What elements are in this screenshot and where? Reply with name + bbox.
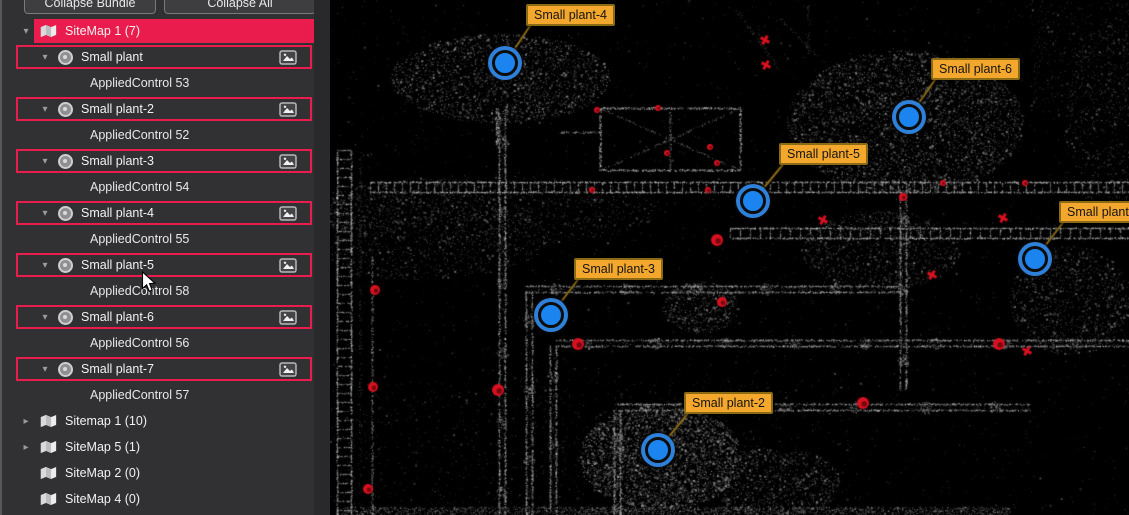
tree-item-label: Small plant-6 [81,310,154,324]
tree-item-label: SiteMap 1 (7) [65,24,140,38]
expand-caret-icon[interactable]: ▾ [38,364,52,375]
tree-item-scan[interactable]: ▾Small plant-7 [16,357,312,381]
tree-item-control[interactable]: AppliedControl 54 [2,175,314,199]
scan-position-marker[interactable] [740,188,766,214]
tree-item-control[interactable]: AppliedControl 56 [2,331,314,355]
sitemap-icon [40,466,57,480]
scan-icon [58,154,73,169]
scan-position-marker[interactable] [1022,246,1048,272]
pointcloud-viewer[interactable]: Small plant-4Small plant-6Small plant-5S… [330,0,1129,515]
scan-label-tag[interactable]: Small plant-6 [931,58,1020,80]
scan-label-tag[interactable]: Small plant-7 [1059,201,1129,223]
scan-icon [58,310,73,325]
tree-item-label: SiteMap 4 (0) [65,492,140,506]
image-preview-icon[interactable] [279,362,297,377]
tree-item-label: AppliedControl 58 [90,284,189,298]
tree-item-control[interactable]: AppliedControl 52 [2,123,314,147]
tree-item-label: Small plant-2 [81,102,154,116]
expand-caret-icon[interactable]: ▾ [38,260,52,271]
expand-caret-icon[interactable]: ▸ [19,442,33,453]
expand-caret-icon[interactable]: ▾ [38,312,52,323]
tree-scrollbar-gutter[interactable] [314,0,330,515]
image-preview-icon[interactable] [279,50,297,65]
tree-item-label: AppliedControl 52 [90,128,189,142]
scan-position-marker[interactable] [896,104,922,130]
sitemap-icon [40,440,57,454]
scan-icon [58,258,73,273]
scan-position-marker[interactable] [645,437,671,463]
tree-item-label: Small plant-5 [81,258,154,272]
tree-item-label: Small plant-3 [81,154,154,168]
tree-item-sitemap[interactable]: ▸Sitemap 1 (10) [2,409,314,433]
expand-caret-icon[interactable]: ▾ [38,208,52,219]
tree-item-label: Small plant [81,50,143,64]
tree-item-scan[interactable]: ▾Small plant-5 [16,253,312,277]
tree-item-sitemap[interactable]: ▾SiteMap 1 (7) [2,19,314,43]
expand-caret-icon[interactable]: ▾ [38,156,52,167]
register-app-window: Collapse Bundle Collapse All ▾SiteMap 1 … [0,0,1129,515]
scan-label-tag[interactable]: Small plant-3 [574,258,663,280]
collapse-all-button[interactable]: Collapse All [164,0,316,14]
tree-item-scan[interactable]: ▾Small plant-4 [16,201,312,225]
scan-icon [58,362,73,377]
tree-item-scan[interactable]: ▾Small plant-3 [16,149,312,173]
scan-tree: ▾SiteMap 1 (7)▾Small plantAppliedControl… [2,19,314,513]
image-preview-icon[interactable] [279,154,297,169]
tree-item-sitemap[interactable]: SiteMap 4 (0) [2,487,314,511]
sitemap-icon [40,414,57,428]
image-preview-icon[interactable] [279,310,297,325]
image-preview-icon[interactable] [279,102,297,117]
tree-item-scan[interactable]: ▾Small plant [16,45,312,69]
image-preview-icon[interactable] [279,206,297,221]
scan-icon [58,206,73,221]
scan-label-tag[interactable]: Small plant-2 [684,392,773,414]
sitemap-icon [40,24,57,38]
tree-item-control[interactable]: AppliedControl 58 [2,279,314,303]
scan-tree-panel: Collapse Bundle Collapse All ▾SiteMap 1 … [0,0,330,515]
tree-item-label: AppliedControl 53 [90,76,189,90]
tree-item-label: AppliedControl 57 [90,388,189,402]
scan-label-tag[interactable]: Small plant-4 [526,4,615,26]
tree-item-label: Sitemap 1 (10) [65,414,147,428]
scan-icon [58,50,73,65]
tree-item-label: SiteMap 2 (0) [65,466,140,480]
scan-label-tag[interactable]: Small plant-5 [779,143,868,165]
tree-item-label: AppliedControl 54 [90,180,189,194]
tree-item-control[interactable]: AppliedControl 57 [2,383,314,407]
expand-caret-icon[interactable]: ▾ [38,52,52,63]
tree-item-label: Small plant-4 [81,206,154,220]
image-preview-icon[interactable] [279,258,297,273]
scan-icon [58,102,73,117]
scan-position-marker[interactable] [492,50,518,76]
collapse-bundle-button[interactable]: Collapse Bundle [24,0,156,14]
tree-item-control[interactable]: AppliedControl 55 [2,227,314,251]
expand-caret-icon[interactable]: ▾ [38,104,52,115]
tree-item-label: Small plant-7 [81,362,154,376]
tree-item-label: AppliedControl 55 [90,232,189,246]
expand-caret-icon[interactable]: ▸ [19,416,33,427]
expand-caret-icon[interactable]: ▾ [19,26,33,37]
tree-item-label: AppliedControl 56 [90,336,189,350]
tree-item-control[interactable]: AppliedControl 53 [2,71,314,95]
tree-item-scan[interactable]: ▾Small plant-6 [16,305,312,329]
tree-item-sitemap[interactable]: SiteMap 2 (0) [2,461,314,485]
scan-position-marker[interactable] [538,302,564,328]
tree-item-scan[interactable]: ▾Small plant-2 [16,97,312,121]
sitemap-icon [40,492,57,506]
tree-item-label: SiteMap 5 (1) [65,440,140,454]
tree-item-sitemap[interactable]: ▸SiteMap 5 (1) [2,435,314,459]
